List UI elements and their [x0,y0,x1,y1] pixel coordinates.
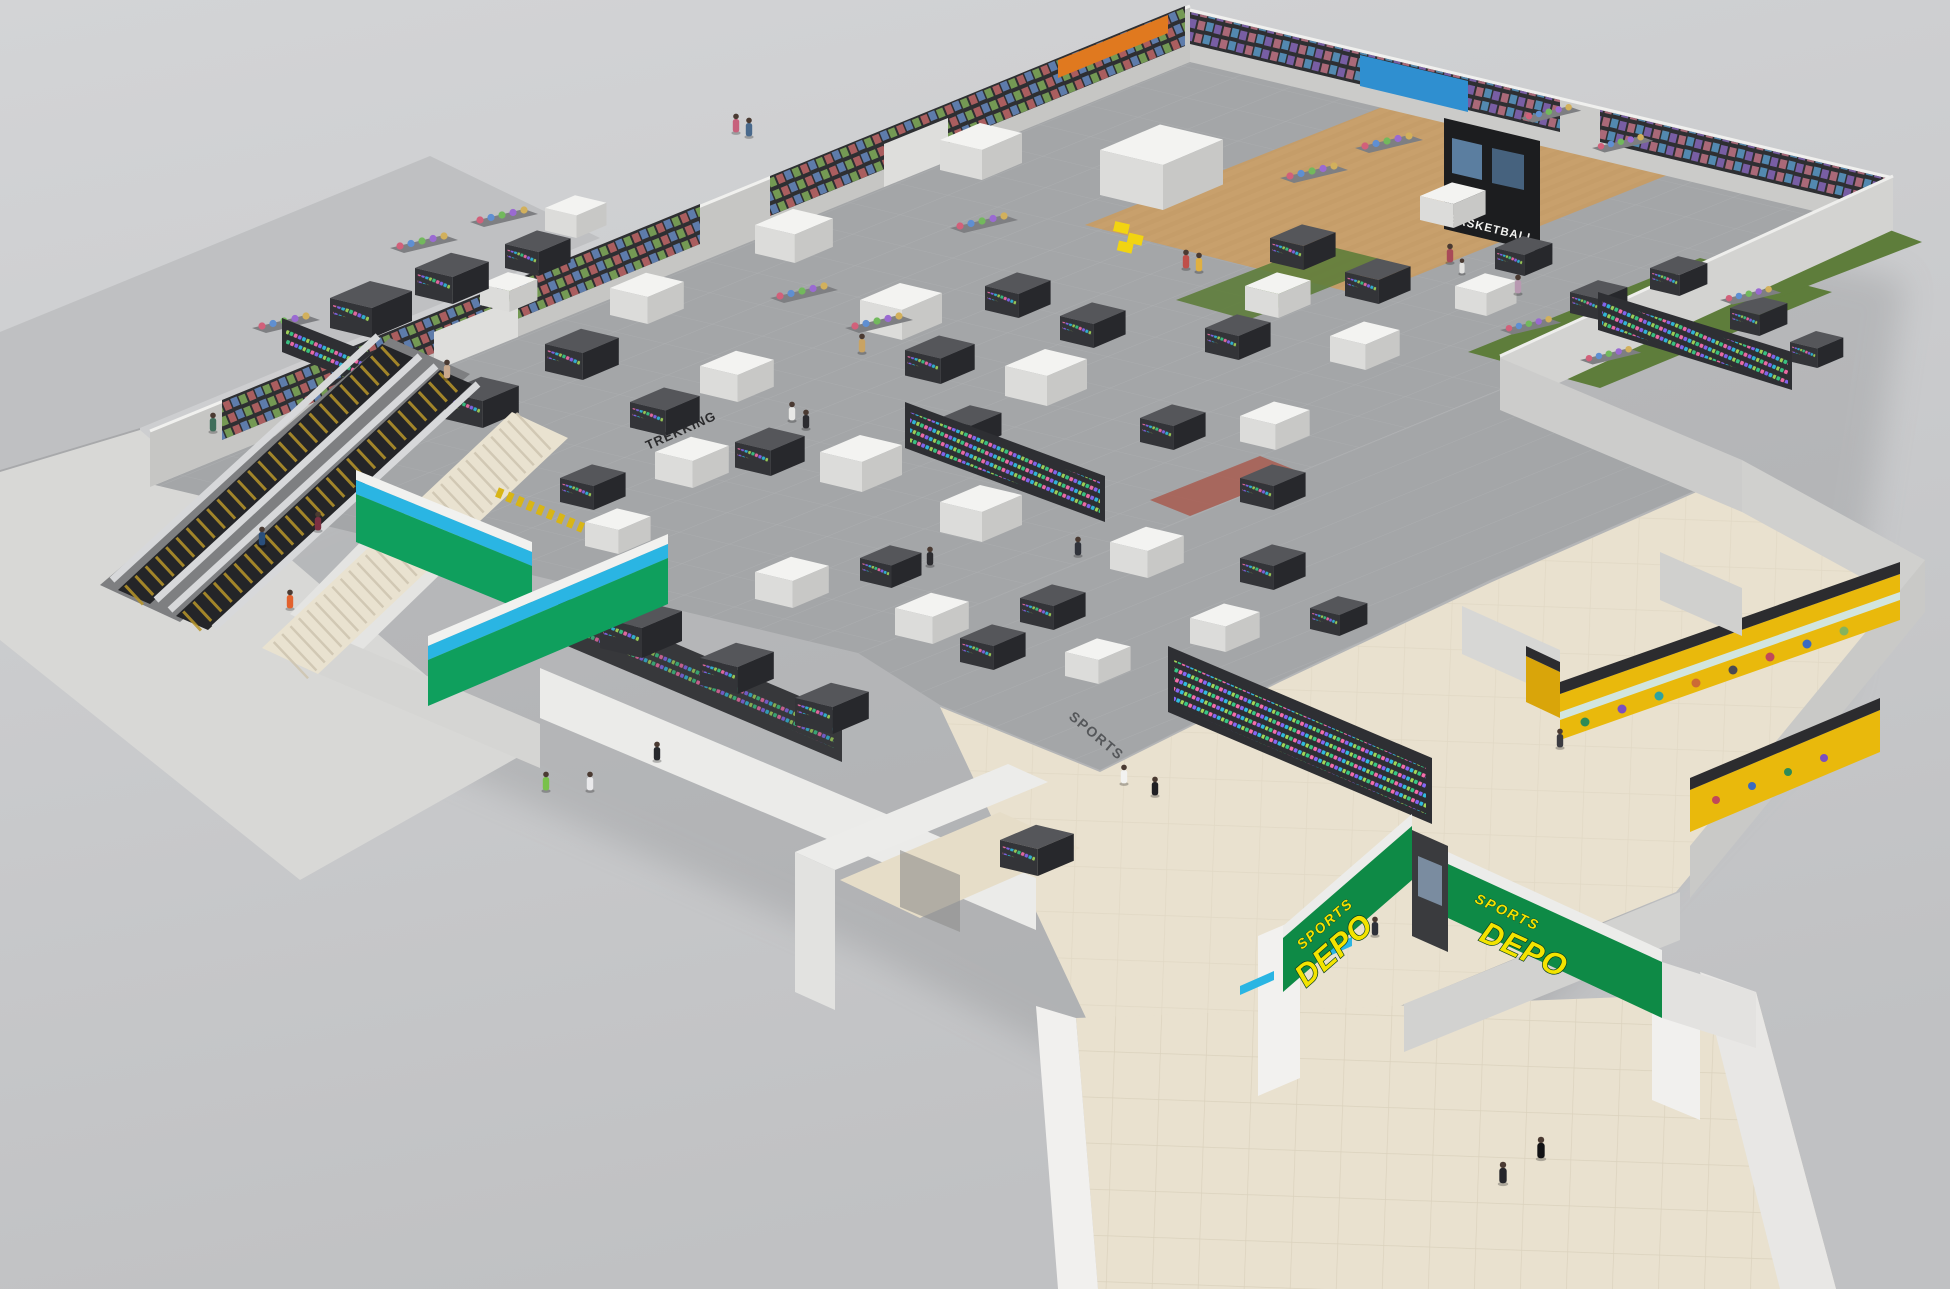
store-floorplan-render: SPORTS SHOES TREKKING BASKETBALL [0,0,1950,1289]
floorplan-stage: SPORTS SHOES TREKKING BASKETBALL [0,0,1950,1289]
